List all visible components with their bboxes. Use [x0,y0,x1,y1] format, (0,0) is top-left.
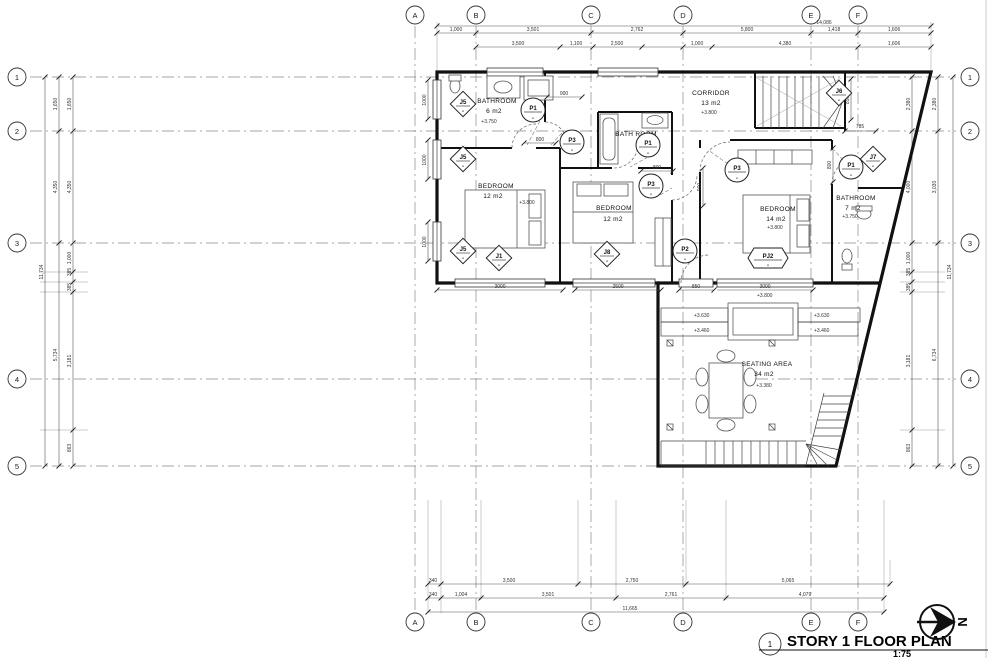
tag-sub: - [532,116,534,122]
tag-label: J8 [604,250,611,256]
tag-label: J7 [870,155,877,161]
tag-sub: - [462,256,464,262]
dim-label: 850 [692,284,701,290]
dim-label: 2500 [612,284,623,290]
door-tag-p3: P3 - [560,130,584,154]
dim-label: 2,750 [626,578,639,584]
dim-label: 800 [827,161,833,170]
bed-left [465,190,545,248]
grid-col-label: B [473,11,478,20]
dim-label: 3,030 [932,181,938,194]
grid-col-label: C [588,11,594,20]
dim-label: 6,734 [932,349,938,362]
dimensions-bottom: 340 3,500 2,750 5,065 340 1,004 3,501 2,… [426,500,893,615]
dim-label: 11,734 [39,264,45,279]
tag-label: P1 [644,141,652,147]
level-label: +3.460 [694,328,710,334]
dim-label: 3,500 [512,41,525,47]
room-level: +3.750 [842,214,858,220]
tag-sub: - [684,257,686,263]
grid-col-label: F [856,11,861,20]
room-level: +3.380 [756,383,772,389]
window-tag-j5: J5 - [450,146,475,171]
drawing-scale: 1:75 [893,649,911,658]
tag-label: P2 [681,247,689,253]
dim-label: 1,650 [67,98,73,111]
grid-bubbles-bottom: A B C D E F [406,613,867,631]
staircase-terrace [661,393,853,466]
dim-label: 2,500 [611,41,624,47]
dim-label: 14,086 [816,20,832,26]
tag-label: P1 [847,163,855,169]
dim-label: 900 [560,91,569,97]
tag-label: P3 [647,182,655,188]
door-tag-p1: P1 - [521,98,545,122]
tag-sub: - [767,263,769,269]
grid-row-label: 2 [968,127,972,136]
dim-label: 1,000 [906,252,912,265]
door-tag-p3: P3 - [639,174,663,198]
room-level: +3.800 [767,225,783,231]
dim-label: 3,500 [503,578,516,584]
room-name: BATHROOM [836,195,875,202]
window-tag-j8: J8 - [594,241,619,266]
grid-row-label: 5 [968,462,972,471]
dim-label: 863 [906,444,912,453]
tag-label: P1 [529,106,537,112]
room-area: 14 m2 [766,216,786,223]
level-label: +3.630 [694,313,710,319]
dim-label: 2,762 [631,27,644,33]
dim-label: 3000 [494,284,505,290]
dim-label: 3,501 [527,27,540,33]
dim-label: 3,501 [542,592,555,598]
dim-label: 785 [856,124,865,130]
dim-label: 3,181 [67,355,73,368]
window-tag-j1: J1 - [486,245,511,270]
grid-col-label: A [412,618,417,627]
window-tag-j7: J7 - [860,146,885,171]
floor-plan-drawing: A B C D E F A B C D E F 1 2 3 4 5 1 2 3 … [0,0,1000,658]
tag-sub: - [650,192,652,198]
tag-sub: - [872,164,874,170]
dim-label: 3000 [759,284,770,290]
title-block: 1 STORY 1 FLOOR PLAN 1:75 [759,633,988,658]
grid-bubbles-left: 1 2 3 4 5 [8,68,26,475]
dim-label: 4,000 [906,181,912,194]
dim-label: 1000 [422,94,428,105]
level-label: +3.630 [814,313,830,319]
tag-label: P3 [568,138,576,144]
grid-col-label: F [856,618,861,627]
staircase-upper [757,76,843,128]
grid-row-label: 1 [968,73,972,82]
dim-label: 1,000 [691,41,704,47]
tag-label: J5 [460,100,467,106]
level-label: +3.460 [814,328,830,334]
room-name: BEDROOM [760,206,796,213]
dim-label: 4,079 [799,592,812,598]
grid-col-label: E [808,618,813,627]
dimensions-top: 14,086 1,000 3,501 2,762 5,800 1,418 1,6… [435,20,934,70]
tag-label: P3 [733,166,741,172]
room-name: BATHROOM [477,98,516,105]
door-tag-p3: P3 - [725,158,749,182]
tag-label: PJ2 [763,254,774,260]
tag-sub: - [462,109,464,115]
tag-sub: - [462,164,464,170]
bed-right [738,150,812,253]
grid-col-label: E [808,11,813,20]
grid-row-label: 3 [15,239,19,248]
grid-row-label: 4 [15,375,19,384]
dim-label: 800 [536,137,545,143]
tag-sub: - [736,176,738,182]
dim-label: 1,000 [67,252,73,265]
room-name: CORRIDOR [692,90,730,97]
dim-label: 385 [67,283,73,292]
room-area: 13 m2 [701,100,721,107]
door-tag-p1: P1 - [636,133,660,157]
dim-label: 1,004 [455,592,468,598]
tag-sub: - [571,148,573,154]
room-area: 34 m2 [754,371,774,378]
terrace-levels: +3.630 +3.460 +3.630 +3.460 [694,313,830,334]
tag-sub: - [850,173,852,179]
grid-col-label: B [473,618,478,627]
grid-row-label: 3 [968,239,972,248]
room-level: +3.750 [481,119,497,125]
dim-label: 863 [67,444,73,453]
floor-plan-sheet: A B C D E F A B C D E F 1 2 3 4 5 1 2 3 … [0,0,1000,658]
grid-row-label: 5 [15,462,19,471]
grid-row-label: 1 [15,73,19,82]
grid-bubbles-right: 1 2 3 4 5 [961,68,979,475]
grid-row-label: 2 [15,127,19,136]
drawing-number: 1 [768,640,773,649]
room-level: +3.800 [701,110,717,116]
window-tag-j5: J5 - [450,91,475,116]
dim-label: 2,761 [665,592,678,598]
dim-label: 340 [429,592,438,598]
grid-col-label: C [588,618,594,627]
dim-label: 5,065 [782,578,795,584]
tag-label: J5 [460,247,467,253]
grid-row-label: 4 [968,375,972,384]
grid-col-label: D [680,618,686,627]
tag-sub: - [606,259,608,265]
grid-col-label: A [412,11,417,20]
dim-label: 11,665 [623,606,638,612]
dim-label: 800 [653,165,662,171]
door-tag-pj2: PJ2 - [748,248,788,269]
dim-label: 1,418 [828,27,841,33]
dim-label: 1,100 [570,41,583,47]
dim-label: 5,800 [741,27,754,33]
dim-label: 1,650 [53,98,59,111]
tag-label: J6 [836,89,843,95]
level-label: +3.800 [757,293,773,299]
dimensions-right: 2,380 4,000 1,000 385 385 3,181 863 2,38… [900,75,956,469]
dim-label: 1,606 [888,41,901,47]
dim-label: 385 [67,268,73,277]
room-level: +3.800 [519,200,535,206]
dim-label: 4,350 [67,181,73,194]
dim-label: 385 [906,283,912,292]
grid-col-label: D [680,11,686,20]
north-label: N [955,617,970,626]
dim-label: 1000 [422,236,428,247]
room-area: 12 m2 [483,193,503,200]
dim-label: 340 [429,578,438,584]
dim-label: 11,734 [947,264,953,279]
tag-label: J5 [460,155,467,161]
room-name: BEDROOM [596,205,632,212]
dim-label: 1,000 [450,27,463,33]
dim-label: 900 [697,183,703,192]
grid-bubbles-top: A B C D E F [406,6,867,24]
dim-label: 5,734 [53,349,59,362]
room-area: 6 m2 [486,108,502,115]
dim-label: 1000 [422,154,428,165]
room-name: BEDROOM [478,183,514,190]
dim-label: 2,380 [906,98,912,111]
room-name: SEATING AREA [742,361,793,368]
dim-label: 3,181 [906,355,912,368]
dim-label: 385 [906,268,912,277]
tag-sub: - [838,98,840,104]
room-area: 12 m2 [603,216,623,223]
dim-label: 1,606 [888,27,901,33]
room-area: 7 m2 [845,205,861,212]
dim-label: 2,380 [932,98,938,111]
dimensions-left: 11,734 1,650 4,350 5,734 1,650 4,350 1,0… [39,75,88,469]
tag-sub: - [647,151,649,157]
tag-sub: - [498,263,500,269]
door-tag-p2: P2 - [673,239,697,263]
door-tag-p1: P1 - [839,155,863,179]
tag-label: J1 [496,254,503,260]
dim-label: 4,350 [53,181,59,194]
dim-label: 4,380 [779,41,792,47]
